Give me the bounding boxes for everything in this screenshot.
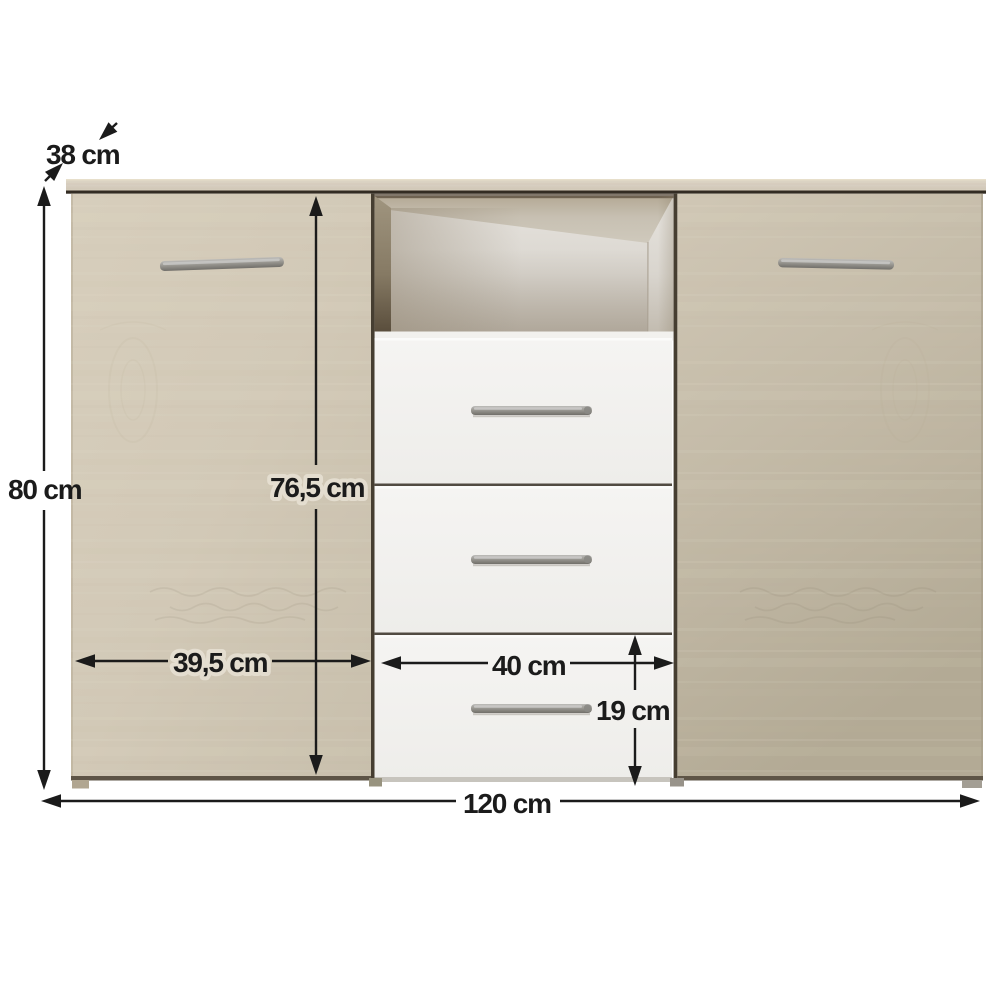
svg-text:80 cm: 80 cm xyxy=(8,474,82,505)
svg-text:40 cm: 40 cm xyxy=(492,650,566,681)
svg-text:120 cm: 120 cm xyxy=(463,788,551,819)
svg-text:39,5 cm: 39,5 cm xyxy=(173,647,268,678)
svg-text:38 cm: 38 cm xyxy=(46,139,120,170)
svg-text:76,5 cm: 76,5 cm xyxy=(270,472,365,503)
svg-text:19 cm: 19 cm xyxy=(596,695,670,726)
